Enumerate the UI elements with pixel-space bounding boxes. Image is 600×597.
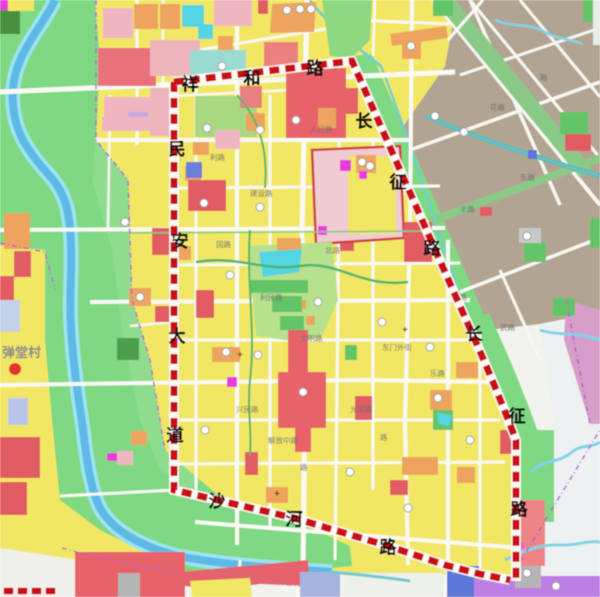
svg-text:弹堂村: 弹堂村	[2, 345, 41, 360]
svg-text:丰路: 丰路	[460, 204, 475, 214]
svg-text:文明路: 文明路	[300, 333, 323, 343]
svg-text:建设路: 建设路	[250, 188, 273, 198]
svg-text:光明路: 光明路	[350, 404, 373, 414]
svg-text:武路: 武路	[500, 322, 515, 332]
svg-text:路: 路	[307, 58, 325, 78]
svg-text:路: 路	[380, 432, 388, 442]
svg-text:祥: 祥	[182, 74, 199, 94]
svg-text:解放中路: 解放中路	[268, 435, 298, 445]
svg-text:兴民路: 兴民路	[236, 404, 259, 414]
svg-text:+: +	[402, 325, 408, 336]
svg-text:路: 路	[424, 238, 442, 258]
svg-text:路: 路	[300, 462, 308, 472]
svg-text:人民路: 人民路	[310, 124, 333, 134]
svg-text:沙: 沙	[209, 492, 226, 511]
svg-text:东路: 东路	[520, 172, 535, 182]
svg-text:征: 征	[509, 406, 526, 426]
svg-text:路: 路	[380, 537, 398, 557]
svg-text:大: 大	[169, 326, 186, 346]
svg-text:民: 民	[169, 140, 186, 159]
svg-text:征: 征	[390, 172, 407, 192]
svg-text:安: 安	[172, 231, 189, 251]
svg-text:河: 河	[286, 510, 303, 529]
svg-text:北路: 北路	[325, 245, 340, 255]
svg-text:国路: 国路	[216, 239, 231, 249]
svg-text:路: 路	[511, 499, 529, 519]
svg-text:乐路: 乐路	[430, 368, 445, 378]
svg-text:路: 路	[540, 72, 548, 82]
svg-text:长: 长	[466, 324, 484, 344]
svg-text:道: 道	[167, 425, 184, 445]
svg-text:利路: 利路	[210, 152, 225, 162]
svg-text:利民路: 利民路	[260, 292, 283, 302]
svg-text:+: +	[237, 350, 243, 361]
svg-text:和: 和	[244, 69, 261, 88]
svg-text:花路: 花路	[490, 102, 505, 112]
svg-text:东门外街: 东门外街	[382, 342, 412, 352]
svg-text:+: +	[274, 489, 280, 500]
svg-text:长: 长	[356, 111, 374, 131]
